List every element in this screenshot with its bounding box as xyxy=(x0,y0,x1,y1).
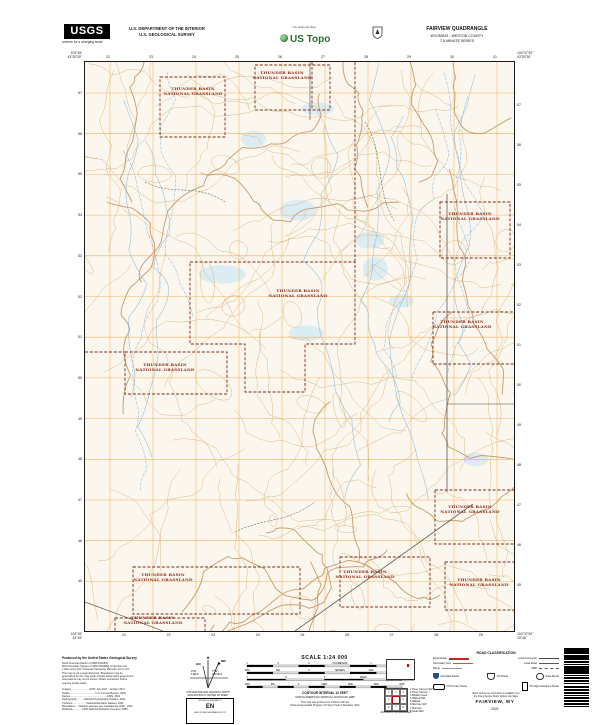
grassland-label: THUNDER BASINNATIONAL GRASSLAND xyxy=(268,288,328,298)
svg-text:1: 1 xyxy=(246,677,248,679)
grid-number: 51 xyxy=(517,343,521,347)
usng-zone-value: 13T xyxy=(222,712,226,714)
adjoining-center-cell xyxy=(392,696,399,703)
route-shield-label: Interstate Route xyxy=(441,675,459,678)
grid-number: 52 xyxy=(68,295,82,299)
grassland-label: THUNDER BASINNATIONAL GRASSLAND xyxy=(123,615,183,625)
grid-number: 28 xyxy=(364,55,368,59)
road-type-label: Secondary Hwy xyxy=(433,662,451,665)
svg-text:1000: 1000 xyxy=(368,670,374,672)
credit-line: Wetlands..............FWS National Wetla… xyxy=(62,708,180,711)
quad-title: FAIRVIEW QUADRANGLE xyxy=(398,26,516,32)
road-line-sample xyxy=(539,658,559,659)
usng-square-id-label: 100,000-m SQUARE ID xyxy=(187,700,233,702)
adjoining-quadrangles-grid: 12345678 xyxy=(384,688,408,712)
ustopo-logo: The National Map US Topo xyxy=(280,25,340,47)
grid-number: 27 xyxy=(390,633,394,637)
sheet-year: 2021 xyxy=(455,707,535,711)
barcode-bar xyxy=(564,683,589,684)
ustopo-brand-label: US Topo xyxy=(290,34,330,45)
usng-square-id: EN xyxy=(187,704,233,710)
svg-text:4000: 4000 xyxy=(374,684,380,686)
grid-number: 25 xyxy=(300,633,304,637)
grid-number: 47 xyxy=(68,498,82,502)
usng-panel: 100,000-m SQUARE ID EN GRID ZONE DESIGNA… xyxy=(186,698,234,724)
barcode-bar xyxy=(564,652,589,654)
grassland-label: THUNDER BASINNATIONAL GRASSLAND xyxy=(135,362,195,372)
barcode-bar xyxy=(564,706,589,707)
grid-number: 45 xyxy=(68,579,82,583)
corner-coordinates: 104°45'43°45' xyxy=(30,632,82,641)
fs-route-item: FS Primary Route xyxy=(433,682,467,691)
adjoining-cell: 8 xyxy=(400,704,407,711)
svg-text:0: 0 xyxy=(324,677,326,679)
contour-interval: CONTOUR INTERVAL 10 FEET xyxy=(250,691,400,695)
adjoining-cell: 3 xyxy=(400,689,407,696)
route-shield-item: US Route xyxy=(487,673,508,681)
coordinate-label: 43°45' xyxy=(30,636,82,640)
svg-text:0: 0 xyxy=(298,684,300,686)
grid-number: 49 xyxy=(517,423,521,427)
barcode-bar xyxy=(564,658,589,660)
fs-high-icon xyxy=(522,682,528,691)
department-heading: U.S. DEPARTMENT OF THE INTERIOR U.S. GEO… xyxy=(112,26,222,37)
grid-number: 53 xyxy=(68,254,82,258)
grid-number: 53 xyxy=(517,263,521,267)
corner-coordinates: 104°37'30"43°45' xyxy=(517,632,569,641)
grid-number: 22 xyxy=(167,633,171,637)
barcode-bar xyxy=(564,689,589,691)
svg-text:FEET: FEET xyxy=(322,684,328,686)
grassland-label: THUNDER BASINNATIONAL GRASSLAND xyxy=(449,577,509,587)
grid-number: 57 xyxy=(517,103,521,107)
barcode xyxy=(564,648,589,702)
barcode-bar xyxy=(564,697,589,698)
sheet-name: FAIRVIEW, WY xyxy=(455,699,535,704)
grid-number: 50 xyxy=(68,376,82,380)
grid-number: 29 xyxy=(407,55,411,59)
svg-text:6 MILS: 6 MILS xyxy=(191,673,199,676)
forest-service-shield-icon xyxy=(372,26,383,44)
svg-text:1: 1 xyxy=(370,663,372,665)
barcode-bar xyxy=(564,668,589,669)
grassland-label: THUNDER BASINNATIONAL GRASSLAND xyxy=(335,569,395,579)
grid-number: 55 xyxy=(517,183,521,187)
svg-text:KILOMETERS: KILOMETERS xyxy=(333,663,348,665)
quadrangle-location-map xyxy=(386,659,415,680)
svg-text:6000: 6000 xyxy=(399,684,405,686)
grid-number: 50 xyxy=(517,383,521,387)
grassland-label: THUNDER BASINNATIONAL GRASSLAND xyxy=(133,572,193,582)
road-line-sample xyxy=(442,668,462,669)
grid-number: 28 xyxy=(434,633,438,637)
road-type-label: Expressway xyxy=(433,657,447,660)
grid-number: 48 xyxy=(517,463,521,467)
grid-number: 51 xyxy=(68,335,82,339)
grid-number: 54 xyxy=(68,213,82,217)
grid-number: 45 xyxy=(517,583,521,587)
route-shield-label: State Route xyxy=(545,675,559,678)
usgs-logo: USGS xyxy=(64,24,110,39)
adjoining-cell: 1 xyxy=(385,689,392,696)
ustopo-map-sheet: USGS science for a changing world U.S. D… xyxy=(0,0,600,725)
grassland-label: THUNDER BASINNATIONAL GRASSLAND xyxy=(432,319,492,329)
svg-text:★: ★ xyxy=(206,655,210,660)
road-line-sample xyxy=(449,658,469,660)
svg-text:MILES: MILES xyxy=(360,677,367,679)
grid-number: 29 xyxy=(479,633,483,637)
grid-number: 56 xyxy=(68,132,82,136)
barcode-bar xyxy=(564,672,589,674)
svg-text:.5: .5 xyxy=(277,663,280,665)
corner-coordinates: 104°37'30"43°52'30" xyxy=(517,51,569,60)
grid-number: 47 xyxy=(517,503,521,507)
interstate-shield-icon xyxy=(433,673,439,679)
svg-text:126 MILS: 126 MILS xyxy=(212,673,223,676)
grid-number: 26 xyxy=(278,55,282,59)
svg-text:500: 500 xyxy=(271,684,276,686)
topo-map-canvas: THUNDER BASINNATIONAL GRASSLANDTHUNDER B… xyxy=(85,62,514,631)
road-legend-item: Secondary Hwy xyxy=(433,662,473,665)
grid-number: 46 xyxy=(517,543,521,547)
route-shield-label: US Route xyxy=(497,675,508,678)
barcode-bar xyxy=(564,692,589,694)
grid-number: 21 xyxy=(122,633,126,637)
barcode-bar xyxy=(564,695,589,696)
barcode-bar xyxy=(564,677,589,679)
contour-interval-note: CONTOUR INTERVAL 10 FEET NORTH AMERICAN … xyxy=(250,691,400,699)
dept-line-2: U.S. GEOLOGICAL SURVEY xyxy=(112,32,222,38)
road-line-sample xyxy=(453,663,473,664)
grassland-label: THUNDER BASINNATIONAL GRASSLAND xyxy=(163,86,223,96)
coordinate-label: 43°52'30" xyxy=(517,55,569,59)
svg-text:500: 500 xyxy=(276,670,281,672)
svg-text:1000: 1000 xyxy=(244,684,250,686)
svg-text:.5: .5 xyxy=(285,677,288,679)
road-classification-legend: ROAD CLASSIFICATION ExpresswayLocal Conn… xyxy=(433,651,559,699)
svg-text:2000: 2000 xyxy=(348,684,354,686)
road-legend-item: Local Connector xyxy=(518,657,559,660)
quadrangle-title-block: FAIRVIEW QUADRANGLE WYOMING - WESTON COU… xyxy=(398,26,516,43)
road-legend-title: ROAD CLASSIFICATION xyxy=(433,651,559,655)
grid-number: 55 xyxy=(68,172,82,176)
road-legend-row: Secondary HwyLocal Road xyxy=(433,662,559,665)
grid-number: 48 xyxy=(68,457,82,461)
svg-text:1000: 1000 xyxy=(244,670,250,672)
adjoining-cell: 6 xyxy=(385,704,392,711)
road-legend-item: Local Road xyxy=(524,662,559,665)
grid-number: 24 xyxy=(192,55,196,59)
ustopo-globe-icon xyxy=(280,34,288,42)
quadrangle-location-caption: QUADRANGLE LOCATION xyxy=(374,680,426,682)
barcode-bar xyxy=(564,664,589,665)
grassland-label: THUNDER BASINNATIONAL GRASSLAND xyxy=(440,504,500,514)
route-shield-item: State Route xyxy=(536,673,559,681)
svg-text:METERS: METERS xyxy=(335,670,345,672)
quad-series: 7.5-MINUTE SERIES xyxy=(398,39,516,43)
adjoining-cell: 5 xyxy=(400,696,407,703)
grid-number: 24 xyxy=(256,633,260,637)
grid-number: 25 xyxy=(235,55,239,59)
usng-zone-label: GRID ZONE DESIGNATION xyxy=(194,712,222,714)
road-type-label: Local Connector xyxy=(518,657,537,660)
fs-primary-icon xyxy=(433,684,445,690)
grid-number: 56 xyxy=(517,143,521,147)
grid-number: 26 xyxy=(345,633,349,637)
standard-note: This map was produced to conform with th… xyxy=(245,701,405,707)
svg-text:0: 0 xyxy=(308,663,310,665)
grid-number: 46 xyxy=(68,539,82,543)
road-legend-item: Ramp xyxy=(433,667,462,670)
route-shield-item: Interstate Route xyxy=(433,673,459,681)
grassland-label: THUNDER BASINNATIONAL GRASSLAND xyxy=(252,70,312,80)
grid-number: 52 xyxy=(517,303,521,307)
state-shield-icon xyxy=(536,673,544,681)
us-shield-icon xyxy=(487,673,495,680)
svg-text:1: 1 xyxy=(246,663,248,665)
adjoining-cell: 2 xyxy=(392,689,399,696)
corner-coordinates: 104°45'43°52'30" xyxy=(30,51,82,60)
grid-number: 49 xyxy=(68,417,82,421)
road-type-label: 4WD xyxy=(531,667,537,670)
usng-zone: GRID ZONE DESIGNATION 13T xyxy=(187,712,233,714)
road-line-sample xyxy=(539,668,559,669)
map-area: THUNDER BASINNATIONAL GRASSLANDTHUNDER B… xyxy=(85,62,514,631)
svg-text:MN: MN xyxy=(221,659,226,663)
quad-location-dot xyxy=(407,664,410,667)
adjoining-cell: 4 xyxy=(385,696,392,703)
road-legend-item: Expressway xyxy=(433,657,469,660)
barcode-bar xyxy=(564,675,589,677)
barcode-bar xyxy=(564,703,589,705)
declination-diagram: ★MNGN7°04'126 MILS0°20'6 MILS xyxy=(178,654,238,697)
grid-number: 23 xyxy=(211,633,215,637)
grid-number: 57 xyxy=(68,91,82,95)
grassland-label: THUNDER BASINNATIONAL GRASSLAND xyxy=(440,211,500,221)
credit-legend-block: Produced by the United States Geological… xyxy=(62,656,180,712)
usgs-tagline: science for a changing world xyxy=(62,40,122,44)
fs-route-label: FS Primary Route xyxy=(447,685,468,688)
fs-route-item: FS High Clearance Route xyxy=(522,682,559,691)
road-type-label: Ramp xyxy=(433,667,440,670)
barcode-bar xyxy=(564,680,589,682)
road-type-label: Local Road xyxy=(524,662,537,665)
standard-note-2: National Geospatial Program US Topo Prod… xyxy=(245,704,405,707)
barcode-bar xyxy=(564,661,589,663)
grid-number: 30 xyxy=(450,55,454,59)
adjoining-cell: 7 xyxy=(392,704,399,711)
grid-number: 22 xyxy=(106,55,110,59)
svg-text:0: 0 xyxy=(308,670,310,672)
grid-number: 54 xyxy=(517,223,521,227)
grid-number: 23 xyxy=(149,55,153,59)
produced-by-heading: Produced by the United States Geological… xyxy=(62,656,180,660)
svg-text:GN: GN xyxy=(196,662,201,666)
road-line-sample xyxy=(539,663,559,664)
road-legend-row: ExpresswayLocal Connector xyxy=(433,657,559,660)
road-legend-item: 4WD xyxy=(531,667,559,670)
coordinate-label: 43°45' xyxy=(517,636,569,640)
grid-number: 31 xyxy=(493,55,497,59)
road-legend-row: Ramp4WD xyxy=(433,667,559,670)
vertical-datum: NORTH AMERICAN VERTICAL DATUM OF 1988 xyxy=(250,696,400,699)
quad-state-county: WYOMING - WESTON COUNTY xyxy=(398,34,516,38)
fs-route-label: FS High Clearance Route xyxy=(529,685,559,688)
coordinate-label: 43°52'30" xyxy=(30,55,82,59)
grid-number: 27 xyxy=(321,55,325,59)
barcode-bar xyxy=(564,686,589,688)
